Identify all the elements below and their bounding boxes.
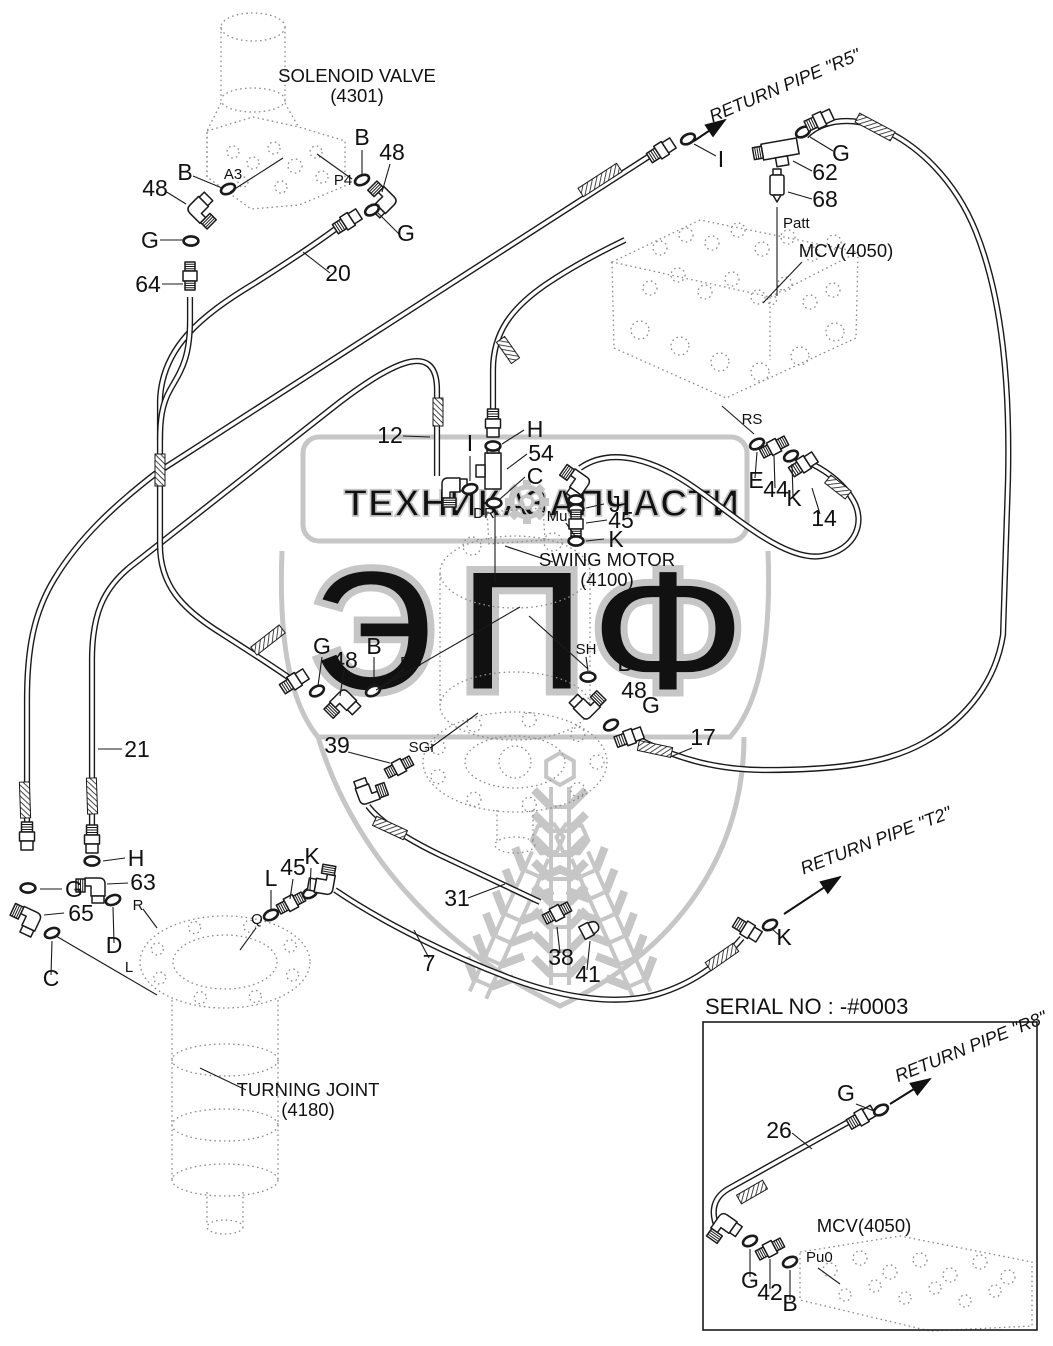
part-label-17: 17	[690, 724, 716, 750]
leader-line	[107, 883, 128, 884]
part-label-i: I	[718, 146, 724, 172]
component-label-swing-motor: SWING MOTOR	[539, 549, 675, 570]
o-ring	[781, 1255, 798, 1270]
parts-diagram-page: ТЕХНИКАЗАПЧАСТИЭПФ B48B48GG6420IG626812I…	[0, 0, 1053, 1346]
tee-top-hose	[493, 240, 625, 428]
hose-7	[335, 890, 742, 1000]
mcv-inset-sketch	[800, 1236, 1032, 1331]
leader-line	[793, 161, 812, 171]
braid-section	[855, 113, 895, 141]
component-label-mcv-4050-: MCV(4050)	[799, 240, 894, 261]
tee-fitting	[752, 138, 801, 170]
part-label-38: 38	[548, 944, 574, 970]
return-pipe-t2-arrow	[784, 877, 840, 914]
part-label-48: 48	[379, 139, 405, 165]
braid-section	[705, 943, 739, 971]
braid-section	[372, 816, 407, 839]
o-ring	[486, 441, 501, 450]
leader-line	[810, 137, 833, 151]
part-label-b: B	[366, 633, 381, 659]
part-label-48: 48	[142, 175, 168, 201]
elbow-fitting	[353, 772, 389, 805]
leader-line	[378, 213, 399, 234]
port-label-p4: P4	[334, 172, 352, 189]
braid-section	[251, 625, 286, 655]
part-label-64: 64	[135, 271, 161, 297]
part-label-68: 68	[812, 186, 838, 212]
port-label-sh: SH	[576, 641, 597, 658]
part-label-k: K	[776, 924, 792, 950]
part-label-c: C	[43, 965, 60, 991]
port-label-a3: A3	[224, 166, 242, 183]
flow-label-return-pipe-t2-: RETURN PIPE "T2"	[798, 802, 956, 879]
part-label-b: B	[354, 124, 369, 150]
part-label-d: D	[106, 932, 123, 958]
part-label-63: 63	[130, 869, 156, 895]
check-valve	[770, 169, 784, 202]
o-ring	[85, 856, 100, 865]
leader-line	[103, 858, 125, 861]
part-label-21: 21	[124, 736, 150, 762]
o-ring	[184, 236, 199, 245]
leader-line	[348, 752, 390, 763]
part-label-g: G	[65, 876, 83, 902]
nipple-fitting	[569, 510, 583, 538]
part-label-26: 26	[766, 1117, 792, 1143]
serial-no-title: SERIAL NO : -#0003	[705, 994, 908, 1019]
hose-end-fitting	[331, 208, 363, 236]
part-label-g: G	[313, 633, 331, 659]
component-label-turning-joint: TURNING JOINT	[237, 1079, 380, 1100]
part-label-39: 39	[324, 732, 350, 758]
part-label-31: 31	[444, 885, 470, 911]
part-label-g: G	[141, 227, 159, 253]
hose-end-fitting	[731, 916, 763, 944]
part-label-12: 12	[377, 422, 403, 448]
component-label--4301-: (4301)	[330, 85, 383, 106]
part-label-44: 44	[763, 476, 789, 502]
elbow-fitting	[5, 903, 42, 938]
hose-end-fitting	[20, 822, 35, 850]
braid-section	[155, 454, 165, 486]
leader-line	[788, 192, 812, 199]
part-label-65: 65	[68, 900, 94, 926]
braid-section	[637, 741, 672, 758]
nipple-fitting	[754, 1236, 785, 1262]
port-label-sgr: SGr	[409, 739, 436, 756]
o-ring	[741, 1234, 758, 1249]
flow-label-return-pipe-r8-: RETURN PIPE "R8"	[892, 1006, 1051, 1086]
braid-section	[433, 398, 443, 426]
part-label-62: 62	[812, 159, 838, 185]
port-label-rs: RS	[742, 411, 763, 428]
part-label-41: 41	[575, 961, 601, 987]
hose-end-fitting	[85, 825, 100, 853]
part-label-14: 14	[811, 505, 837, 531]
part-label-l: L	[265, 865, 278, 891]
o-ring	[569, 536, 584, 545]
o-ring	[581, 672, 596, 681]
part-label-h: H	[128, 845, 145, 871]
o-ring	[872, 1102, 889, 1117]
braid-section	[496, 336, 519, 363]
part-label-k: K	[786, 485, 802, 511]
leader-line	[763, 262, 802, 303]
leader-line	[44, 913, 64, 915]
nipple-fitting	[183, 262, 197, 290]
part-label-i: I	[467, 430, 473, 456]
leader-line	[240, 928, 256, 950]
port-label-pu0: Pu0	[806, 1249, 833, 1266]
o-ring	[104, 893, 121, 907]
hydraulic-piping-diagram: ТЕХНИКАЗАПЧАСТИЭПФ B48B48GG6420IG626812I…	[0, 0, 1053, 1346]
nipple-fitting	[383, 754, 414, 780]
port-label-dr: DR	[473, 505, 495, 522]
part-label-b: B	[177, 159, 192, 185]
part-label-k: K	[304, 843, 320, 869]
o-ring	[21, 883, 36, 892]
tee-top-hose-inner	[493, 240, 625, 428]
part-label-e: E	[748, 467, 763, 493]
port-label-pg: PG	[400, 654, 422, 671]
hose-end-fitting	[845, 1104, 877, 1131]
part-label-c: C	[527, 463, 544, 489]
part-label-h: H	[527, 416, 544, 442]
port-label-l: L	[125, 959, 133, 976]
port-label-r: R	[133, 897, 144, 914]
leader-line	[165, 191, 186, 204]
component-label-mcv-4050-: MCV(4050)	[817, 1215, 912, 1236]
leader-line	[586, 657, 588, 671]
component-label-solenoid-valve: SOLENOID VALVE	[278, 65, 436, 86]
port-label-q: Q	[251, 911, 263, 928]
leader-lines	[40, 137, 874, 1300]
component-label--4180-: (4180)	[281, 1099, 334, 1120]
braid-section	[86, 778, 97, 814]
leader-line	[507, 454, 527, 469]
hose-end-fitting	[486, 409, 501, 437]
part-label-7: 7	[423, 950, 436, 976]
flow-label-return-pipe-r5-: RETURN PIPE "R5"	[706, 44, 864, 126]
return-pipe-r8-arrow	[890, 1079, 930, 1104]
part-label-g: G	[397, 220, 415, 246]
part-label-g: G	[642, 692, 660, 718]
port-label-mu: Mu	[547, 508, 568, 525]
port-label-patt: Patt	[783, 215, 811, 232]
braid-section	[19, 782, 30, 818]
leader-line	[143, 909, 157, 928]
component-label--4100-: (4100)	[580, 569, 633, 590]
watermark-logo: ТЕХНИКАЗАПЧАСТИЭПФ	[281, 437, 768, 1006]
o-ring	[43, 926, 60, 940]
leader-line	[193, 176, 222, 188]
o-ring	[353, 173, 370, 188]
leader-line	[694, 144, 716, 156]
part-label-b: B	[617, 650, 632, 676]
part-label-b: B	[782, 1290, 797, 1316]
hose-end-fitting	[645, 137, 677, 165]
part-label-42: 42	[757, 1279, 783, 1305]
part-label-45: 45	[280, 854, 306, 880]
turning-joint-sketch	[140, 916, 310, 1234]
part-label-g: G	[837, 1080, 855, 1106]
part-label-20: 20	[325, 260, 351, 286]
hose-end-fitting	[803, 108, 835, 133]
elbow-fitting	[186, 191, 224, 229]
part-label-48: 48	[332, 647, 358, 673]
